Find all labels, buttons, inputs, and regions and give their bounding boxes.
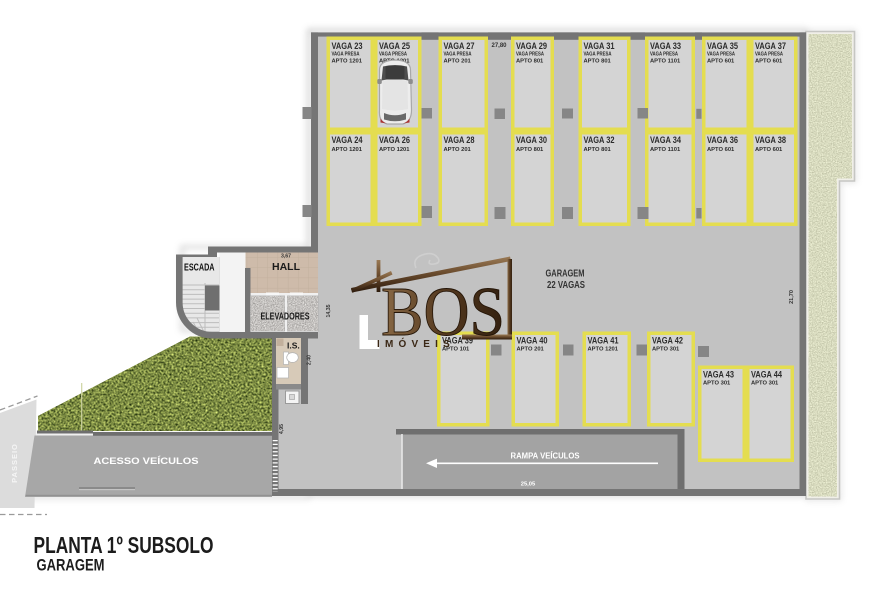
svg-text:3,67: 3,67 [281,254,291,260]
svg-text:I.S.: I.S. [287,341,300,351]
svg-text:IMÓVEIS: IMÓVEIS [377,337,455,350]
svg-text:ACESSO VEÍCULOS: ACESSO VEÍCULOS [94,456,199,466]
svg-text:22 VAGAS: 22 VAGAS [547,280,585,291]
svg-text:APTO 301: APTO 301 [703,381,731,387]
svg-text:APTO 1201: APTO 1201 [332,147,363,153]
svg-text:APTO 601: APTO 601 [755,58,783,64]
svg-text:APTO 601: APTO 601 [707,58,735,64]
svg-text:APTO 301: APTO 301 [751,381,779,387]
svg-text:VAGA PRESA: VAGA PRESA [444,52,473,58]
svg-text:PASSEIO: PASSEIO [10,443,19,483]
svg-text:VAGA 37: VAGA 37 [755,41,786,51]
svg-text:VAGA 44: VAGA 44 [751,370,782,380]
svg-text:APTO 301: APTO 301 [652,347,680,353]
svg-text:27,80: 27,80 [491,43,507,49]
svg-text:APTO 601: APTO 601 [755,147,783,153]
svg-text:APTO 801: APTO 801 [584,58,612,64]
svg-text:VAGA 34: VAGA 34 [650,135,681,145]
svg-text:4,95: 4,95 [279,424,285,434]
svg-text:VAGA 40: VAGA 40 [517,336,548,346]
svg-text:APTO 601: APTO 601 [707,147,735,153]
svg-text:VAGA PRESA: VAGA PRESA [584,52,613,58]
svg-text:VAGA 36: VAGA 36 [707,135,738,145]
svg-text:GARAGEM: GARAGEM [37,556,105,575]
svg-text:2,40: 2,40 [307,355,313,365]
svg-text:PLANTA 1º SUBSOLO: PLANTA 1º SUBSOLO [34,532,214,558]
svg-text:VAGA 24: VAGA 24 [332,135,363,145]
svg-text:VAGA 28: VAGA 28 [444,135,475,145]
svg-text:VAGA 30: VAGA 30 [516,135,547,145]
svg-text:APTO 1201: APTO 1201 [379,147,410,153]
svg-text:VAGA PRESA: VAGA PRESA [332,52,361,58]
svg-text:VAGA 33: VAGA 33 [650,41,681,51]
svg-text:APTO 201: APTO 201 [444,147,472,153]
svg-text:VAGA 26: VAGA 26 [379,135,410,145]
svg-text:ESCADA: ESCADA [184,262,215,274]
svg-text:APTO 1201: APTO 1201 [588,347,619,353]
svg-text:VAGA 42: VAGA 42 [652,336,683,346]
svg-text:HALL: HALL [272,261,301,273]
svg-text:APTO 1101: APTO 1101 [650,58,681,64]
svg-text:VAGA 32: VAGA 32 [584,135,615,145]
svg-text:APTO 801: APTO 801 [516,147,544,153]
svg-text:VAGA 31: VAGA 31 [584,41,615,51]
svg-text:VAGA PRESA: VAGA PRESA [650,52,679,58]
svg-text:VAGA 25: VAGA 25 [379,41,410,51]
svg-text:25,05: 25,05 [521,482,536,488]
svg-text:VAGA 41: VAGA 41 [588,336,619,346]
svg-text:VAGA PRESA: VAGA PRESA [516,52,545,58]
svg-text:APTO 801: APTO 801 [584,147,612,153]
svg-text:VAGA 43: VAGA 43 [703,370,734,380]
svg-text:14,35: 14,35 [326,304,332,317]
svg-text:RAMPA VEÍCULOS: RAMPA VEÍCULOS [511,451,580,461]
svg-text:VAGA PRESA: VAGA PRESA [379,52,408,58]
svg-text:VAGA PRESA: VAGA PRESA [707,52,736,58]
svg-text:VAGA 29: VAGA 29 [516,41,547,51]
svg-text:21,70: 21,70 [789,290,795,304]
svg-text:ELEVADORES: ELEVADORES [261,312,310,323]
svg-text:APTO 201: APTO 201 [517,347,545,353]
svg-text:VAGA 27: VAGA 27 [444,41,475,51]
svg-text:VAGA 23: VAGA 23 [332,41,363,51]
svg-text:VAGA 35: VAGA 35 [707,41,738,51]
svg-text:APTO 201: APTO 201 [444,58,472,64]
svg-text:VAGA PRESA: VAGA PRESA [755,52,784,58]
svg-text:GARAGEM: GARAGEM [546,269,585,280]
svg-text:APTO 801: APTO 801 [516,58,544,64]
svg-text:APTO 1101: APTO 1101 [650,147,681,153]
svg-text:APTO 1201: APTO 1201 [332,58,363,64]
svg-text:VAGA 38: VAGA 38 [755,135,786,145]
